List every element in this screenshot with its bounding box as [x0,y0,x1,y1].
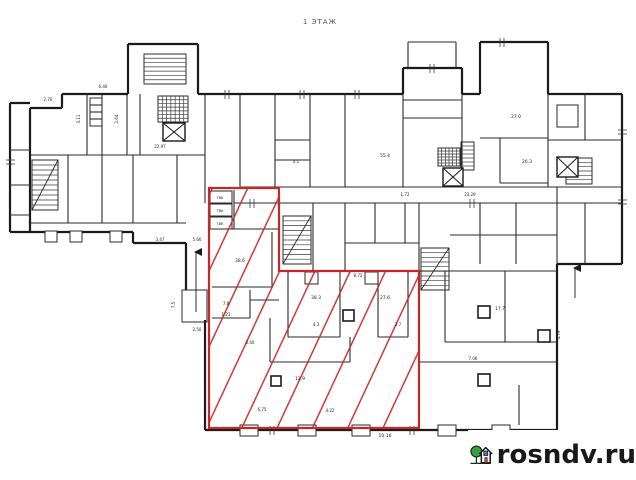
dimension-label: 7.5 [171,301,176,308]
dimension-label: 27.6 [380,295,390,301]
dimension-label: 6.40 [99,84,108,89]
watermark-logo [468,431,493,479]
dimension-label: 17.7 [495,306,505,312]
highlighted-unit [209,188,419,428]
dimension-label: 5.40 [246,340,255,345]
dimension-label: 26.3 [522,159,532,165]
dimension-label: 4.3 [313,322,320,327]
dimension-label: 4.1 [293,159,300,164]
dimension-label: 4.79 [556,330,561,339]
floorplan-canvas: 22.976.402.708.726.7510.1623.2938.67.81.… [0,0,636,480]
dimension-label: ТВК [215,196,224,200]
dimension-label: 7.8 [223,301,230,306]
watermark-text: rosndv.ru [497,440,636,470]
dimension-label: 2.50 [193,327,202,332]
house-window [484,451,488,455]
dimension-label: 7.06 [469,356,478,361]
room-box [438,425,456,436]
dimension-label: 8.72 [354,273,363,278]
dimension-label: 3.11 [76,114,81,123]
dimension-label: ТВК [215,222,224,226]
dimension-label: 38.6 [235,258,245,264]
dimension-label: 38.3 [311,295,321,301]
watermark: rosndv.ru [468,430,636,480]
dimension-label: 5.66 [193,237,202,242]
dimension-label: 1.72 [401,192,410,197]
tree-icon [471,446,482,457]
room-box [45,231,57,242]
dimension-label: 2.64 [114,114,119,123]
dimension-label: ТВК [215,209,224,213]
room-box [70,231,82,242]
dimension-label: 23.29 [464,192,476,197]
room-box [182,290,207,322]
dimension-label: 6.75 [258,407,267,412]
dimension-label: 3.47 [156,237,165,242]
dimension-label: 12.9 [295,376,305,382]
room-box [110,231,122,242]
house-door [485,457,487,462]
pillar [478,306,490,318]
pillar [478,374,490,386]
room-box [557,105,578,127]
dimension-label: 55.4 [380,153,390,159]
dimension-label: 2.70 [44,97,53,102]
dimension-label: 22.97 [154,144,166,149]
dimension-label: 10.16 [379,433,392,439]
floorplan-page: 1 ЭТАЖ 22.976.402.708.726.7510.1623.2938… [0,0,636,480]
staircases [32,54,592,290]
highlighted-unit-outline [209,188,419,428]
dimension-label: 2.7 [395,322,402,327]
elevator-shafts [163,123,578,186]
pillar [538,330,550,342]
dimension-label: 27.0 [511,114,521,120]
dimension-label: 4.22 [326,408,335,413]
dimension-label: 1.23 [222,312,231,317]
